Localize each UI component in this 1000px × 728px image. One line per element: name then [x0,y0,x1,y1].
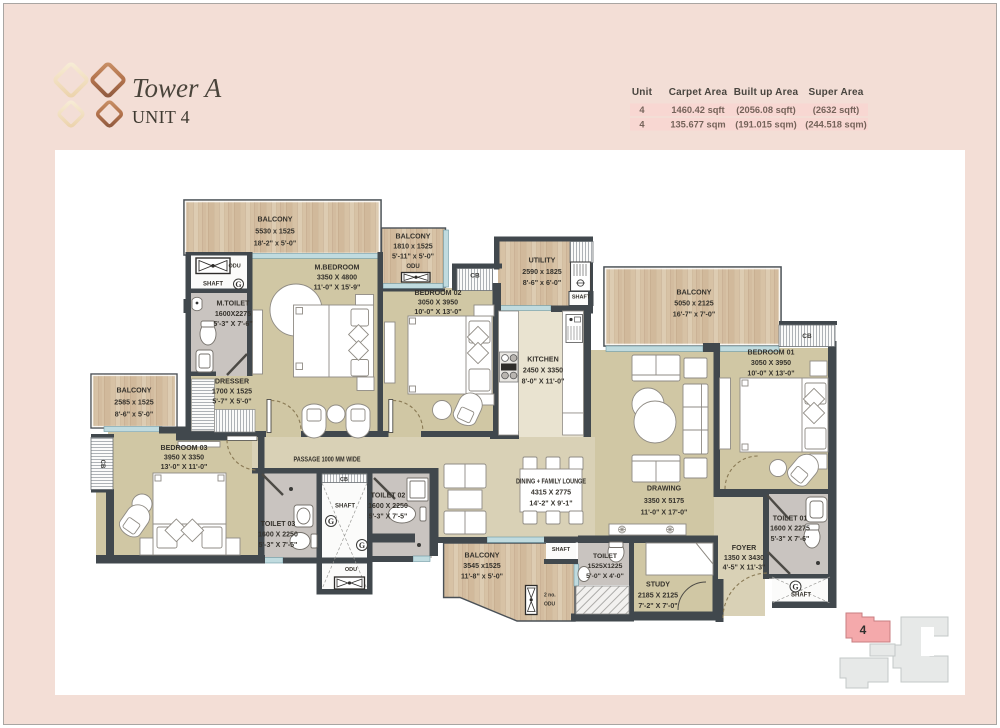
svg-text:8'-6" x 5'-0": 8'-6" x 5'-0" [115,411,154,419]
svg-text:3050 X 3950: 3050 X 3950 [751,359,791,367]
svg-text:7'-2" X 7'-0": 7'-2" X 7'-0" [638,602,677,610]
svg-text:BALCONY: BALCONY [116,387,151,395]
svg-text:FOYER: FOYER [732,544,756,552]
svg-text:ODU: ODU [406,264,419,270]
svg-text:3050 X 3950: 3050 X 3950 [418,299,458,307]
svg-text:1810 x 1525: 1810 x 1525 [393,243,433,251]
svg-text:5050 x 2125: 5050 x 2125 [674,300,714,308]
svg-text:16'-7" x 7'-0": 16'-7" x 7'-0" [673,311,715,319]
svg-text:4'-5" X 11'-3": 4'-5" X 11'-3" [723,564,766,572]
svg-text:4: 4 [639,120,645,130]
svg-text:Unit: Unit [632,87,653,98]
svg-text:BALCONY: BALCONY [257,216,292,224]
svg-text:5'-3" X 7'-6": 5'-3" X 7'-6" [771,536,810,543]
svg-text:3950 X 3350: 3950 X 3350 [164,454,204,462]
svg-text:STUDY: STUDY [646,581,670,589]
svg-text:8'-6" x 6'-0": 8'-6" x 6'-0" [523,279,562,287]
svg-text:BEDROOM 01: BEDROOM 01 [748,349,795,357]
svg-text:2185 X 2125: 2185 X 2125 [638,592,678,600]
svg-text:10'-0" X 13'-0": 10'-0" X 13'-0" [414,308,461,316]
svg-text:SHAFT: SHAFT [203,282,223,288]
svg-text:UNIT 4: UNIT 4 [132,107,190,127]
svg-text:G: G [328,517,334,526]
svg-text:DRAWING: DRAWING [647,485,682,493]
svg-text:5'-11" x 5'-0": 5'-11" x 5'-0" [392,253,434,261]
svg-text:5'-3" X 7'-5": 5'-3" X 7'-5" [369,514,408,521]
svg-text:11'-0" X 15'-9": 11'-0" X 15'-9" [314,284,361,292]
svg-text:M.TOILET: M.TOILET [217,300,251,308]
svg-text:DINING + FAMILY LOUNGE: DINING + FAMILY LOUNGE [516,478,586,486]
svg-text:(191.015 sqm): (191.015 sqm) [735,120,797,130]
svg-text:14'-2" X 9'-1": 14'-2" X 9'-1" [529,500,572,508]
svg-text:PASSAGE 1000 MM WIDE: PASSAGE 1000 MM WIDE [294,456,361,464]
svg-text:CB: CB [340,477,348,483]
svg-text:5'-0" X 4'-0": 5'-0" X 4'-0" [586,573,624,580]
svg-text:G: G [359,541,365,550]
svg-text:SHAFT: SHAFT [791,593,811,599]
svg-text:Built up Area: Built up Area [734,87,799,98]
svg-text:SHAFT: SHAFT [552,547,571,553]
svg-text:DRESSER: DRESSER [215,378,249,386]
svg-text:G: G [235,280,241,289]
svg-text:Super Area: Super Area [809,87,864,98]
svg-text:2 no.: 2 no. [544,593,556,599]
svg-text:BEDROOM 03: BEDROOM 03 [161,444,208,452]
svg-text:11'-0" X 17'-0": 11'-0" X 17'-0" [641,509,688,517]
svg-text:TOILET 01: TOILET 01 [773,516,808,523]
svg-text:1600 X 2250: 1600 X 2250 [258,532,298,539]
svg-text:BEDROOM 02: BEDROOM 02 [415,289,462,297]
svg-text:TOILET: TOILET [593,553,618,560]
svg-text:3350 X 4800: 3350 X 4800 [317,274,357,282]
svg-text:TOILET 02: TOILET 02 [371,493,406,500]
svg-text:BALCONY: BALCONY [395,233,430,241]
svg-text:BALCONY: BALCONY [676,289,711,297]
svg-text:M.BEDROOM: M.BEDROOM [315,264,360,272]
svg-text:10'-0" X 13'-0": 10'-0" X 13'-0" [747,370,794,378]
svg-text:3350 X 5175: 3350 X 5175 [644,497,684,505]
svg-text:Carpet Area: Carpet Area [669,87,728,98]
svg-text:SHAFT: SHAFT [572,295,591,301]
svg-text:CB: CB [99,460,105,469]
svg-text:4: 4 [639,105,645,115]
svg-text:(244.518 sqm): (244.518 sqm) [805,120,867,130]
svg-text:18'-2" x 5'-0": 18'-2" x 5'-0" [254,240,296,248]
svg-text:1525X1225: 1525X1225 [588,563,623,570]
svg-text:SHAFT: SHAFT [335,504,355,510]
svg-text:5530 x 1525: 5530 x 1525 [255,228,295,236]
svg-text:4: 4 [860,623,867,637]
svg-text:(2056.08 sqft): (2056.08 sqft) [736,105,795,115]
svg-text:5'-3" X 7'-5": 5'-3" X 7'-5" [259,542,298,549]
svg-text:1460.42 sqft: 1460.42 sqft [671,105,724,115]
svg-text:1600 X 2250: 1600 X 2250 [368,503,408,510]
svg-text:5'-3" X 7'-6": 5'-3" X 7'-6" [213,320,252,328]
svg-text:1600X2275: 1600X2275 [215,310,251,318]
svg-text:ODU: ODU [229,264,241,270]
svg-text:2585 x 1525: 2585 x 1525 [114,399,154,407]
svg-text:CB: CB [470,273,480,280]
svg-text:11'-8" x 5'-0": 11'-8" x 5'-0" [461,573,503,581]
svg-text:2590 x 1825: 2590 x 1825 [522,268,562,276]
svg-text:1350 X 3430: 1350 X 3430 [724,554,764,562]
svg-text:8'-0" X 11'-0": 8'-0" X 11'-0" [522,378,565,386]
svg-text:1700 X 1525: 1700 X 1525 [212,388,252,396]
svg-text:TOILET 03: TOILET 03 [261,521,296,528]
svg-text:Tower A: Tower A [132,73,222,103]
svg-text:4315 X 2775: 4315 X 2775 [531,489,571,497]
svg-text:KITCHEN: KITCHEN [527,356,559,364]
svg-text:135.677 sqm: 135.677 sqm [670,120,725,130]
svg-text:(2632 sqft): (2632 sqft) [813,105,860,115]
svg-text:ODU: ODU [345,567,357,573]
svg-text:2450 X 3350: 2450 X 3350 [523,367,563,375]
svg-text:3545 x1525: 3545 x1525 [463,562,501,570]
svg-text:G: G [792,583,798,592]
svg-text:UTILITY: UTILITY [529,257,556,265]
svg-text:5'-7" X 5'-0": 5'-7" X 5'-0" [212,398,251,406]
svg-text:BALCONY: BALCONY [464,552,499,560]
svg-text:CB: CB [802,333,812,340]
svg-text:1600 X 2275: 1600 X 2275 [770,526,810,533]
svg-text:13'-0" X 11'-0": 13'-0" X 11'-0" [161,463,208,471]
svg-text:ODU: ODU [544,602,556,608]
